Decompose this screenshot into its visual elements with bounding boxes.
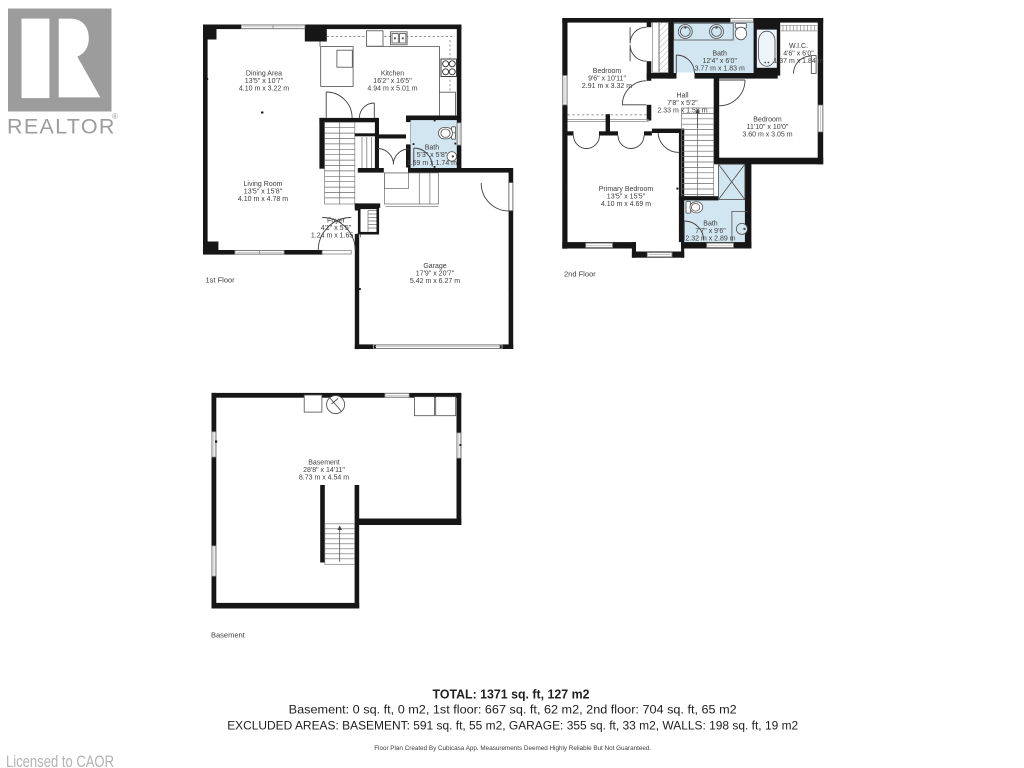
svg-text:9'6" x 10'11": 9'6" x 10'11"	[588, 76, 626, 83]
svg-text:Bath: Bath	[712, 51, 727, 58]
svg-text:Basement: Basement	[211, 631, 246, 640]
svg-text:12'4" x 6'0": 12'4" x 6'0"	[702, 58, 737, 65]
svg-text:Licensed to CAOR: Licensed to CAOR	[6, 752, 114, 768]
svg-text:4'6" x 6'0": 4'6" x 6'0"	[783, 51, 814, 58]
svg-text:Hall: Hall	[676, 93, 689, 100]
svg-text:13'5" x 15'8": 13'5" x 15'8"	[244, 189, 283, 196]
svg-text:1.59 m x 1.74 m: 1.59 m x 1.74 m	[407, 160, 457, 167]
svg-text:Basement: Basement	[308, 460, 340, 467]
svg-text:3.60 m x 3.05 m: 3.60 m x 3.05 m	[742, 132, 792, 139]
svg-text:5'3" x 5'8": 5'3" x 5'8"	[417, 152, 448, 159]
svg-text:2nd Floor: 2nd Floor	[564, 270, 596, 279]
svg-text:Floor Plan Created By Cubicasa: Floor Plan Created By Cubicasa App. Meas…	[374, 745, 651, 752]
svg-text:Basement: 0 sq. ft, 0 m2, 1st: Basement: 0 sq. ft, 0 m2, 1st floor: 667…	[289, 703, 737, 717]
svg-text:Living Room: Living Room	[244, 181, 283, 188]
svg-text:4.10 m x 4.69 m: 4.10 m x 4.69 m	[601, 201, 651, 208]
svg-text:3.77 m x 1.83 m: 3.77 m x 1.83 m	[695, 66, 745, 73]
svg-text:2.91 m x 3.32 m: 2.91 m x 3.32 m	[582, 83, 632, 90]
svg-text:16'2" x 16'5": 16'2" x 16'5"	[373, 78, 412, 85]
svg-text:13'5" x 10'7": 13'5" x 10'7"	[245, 78, 284, 85]
svg-text:Bedroom: Bedroom	[593, 68, 622, 75]
svg-text:Primary Bedroom: Primary Bedroom	[599, 186, 654, 193]
svg-text:1st Floor: 1st Floor	[206, 276, 236, 285]
svg-text:7'8" x 5'2": 7'8" x 5'2"	[667, 100, 698, 107]
svg-text:Kitchen: Kitchen	[381, 70, 404, 77]
svg-text:Garage: Garage	[423, 263, 446, 270]
svg-text:Bath: Bath	[703, 221, 718, 228]
svg-text:Dining Area: Dining Area	[246, 70, 282, 77]
svg-text:®: ®	[112, 112, 118, 121]
svg-text:Bath: Bath	[425, 145, 440, 152]
svg-text:REALTOR: REALTOR	[7, 115, 116, 139]
svg-text:2.32 m x 2.89 m: 2.32 m x 2.89 m	[685, 236, 735, 243]
svg-text:13'5" x 15'5": 13'5" x 15'5"	[607, 194, 646, 201]
svg-text:Bedroom: Bedroom	[753, 117, 782, 124]
svg-text:W.I.C.: W.I.C.	[789, 43, 808, 50]
svg-text:17'9" x 20'7": 17'9" x 20'7"	[416, 271, 455, 278]
svg-text:5.42 m x 6.27 m: 5.42 m x 6.27 m	[410, 278, 460, 285]
svg-text:7'7" x 9'6": 7'7" x 9'6"	[695, 228, 726, 235]
svg-text:8.73 m x 4.54 m: 8.73 m x 4.54 m	[299, 475, 349, 482]
svg-text:EXCLUDED AREAS: BASEMENT: 591: EXCLUDED AREAS: BASEMENT: 591 sq. ft, 55…	[227, 718, 798, 732]
svg-text:4.10 m x 4.78 m: 4.10 m x 4.78 m	[238, 196, 288, 203]
svg-text:Foyer: Foyer	[327, 218, 346, 225]
svg-text:4.94 m x 5.01 m: 4.94 m x 5.01 m	[367, 86, 417, 93]
svg-text:1.24 m x 1.65 m: 1.24 m x 1.65 m	[311, 233, 361, 240]
svg-text:11'10" x 10'0": 11'10" x 10'0"	[747, 124, 789, 131]
svg-text:TOTAL: 1371 sq. ft, 127 m2: TOTAL: 1371 sq. ft, 127 m2	[433, 688, 590, 702]
svg-text:4'1" x 5'5": 4'1" x 5'5"	[321, 225, 352, 232]
svg-text:1.37 m x 1.84 m: 1.37 m x 1.84 m	[773, 58, 823, 65]
svg-text:4.10 m x 3.22 m: 4.10 m x 3.22 m	[239, 86, 289, 93]
svg-text:28'8" x 14'11": 28'8" x 14'11"	[303, 467, 345, 474]
